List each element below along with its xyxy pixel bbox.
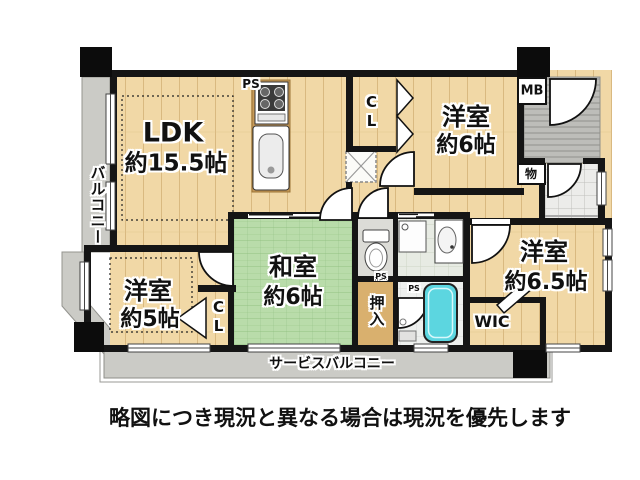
ps-toilet-label: PS [375, 273, 387, 281]
oshiire-label: 押入 [369, 295, 384, 327]
kitchen-sink-icon [253, 126, 289, 190]
floorplan-page: LDK 約15.5帖 洋室 約6帖 洋室 約5帖 洋室 約6.5帖 和室 約6帖… [0, 0, 640, 480]
stove-icon [255, 82, 288, 124]
japanese-size-label: 約6帖 [263, 287, 322, 309]
toilet-icon [363, 230, 389, 271]
ldk-name-label: LDK [143, 120, 204, 147]
bathtub-icon [424, 284, 457, 342]
closet-bottom-label: CL [211, 298, 226, 336]
ps-bath-label: PS [408, 285, 420, 293]
western65-size-label: 約6.5帖 [505, 272, 588, 294]
hatch-square [346, 150, 376, 182]
meter-box-label: MB [521, 85, 544, 98]
washing-machine-pan-icon [399, 221, 426, 252]
disclaimer-caption: 略図につき現況と異なる場合は現況を優先します [109, 402, 571, 432]
western5-name-label: 洋室 [124, 279, 172, 303]
wic-label: WIC [474, 314, 509, 330]
washbasin-icon [435, 220, 463, 263]
ldk-size-label: 約15.5帖 [125, 153, 228, 176]
service-balcony-label: サービスバルコニー [269, 357, 395, 371]
ps-kitchen-label: PS [242, 78, 259, 90]
room-japanese [234, 218, 352, 345]
western65-name-label: 洋室 [520, 240, 568, 264]
western5-size-label: 約5帖 [120, 309, 179, 331]
western6-size-label: 約6帖 [436, 135, 495, 157]
western6-name-label: 洋室 [442, 105, 490, 129]
storage-label: 物 [525, 168, 537, 180]
japanese-name-label: 和室 [269, 255, 317, 279]
closet-top-label: CL [364, 93, 379, 131]
balcony-label: バルコニー [90, 165, 105, 245]
